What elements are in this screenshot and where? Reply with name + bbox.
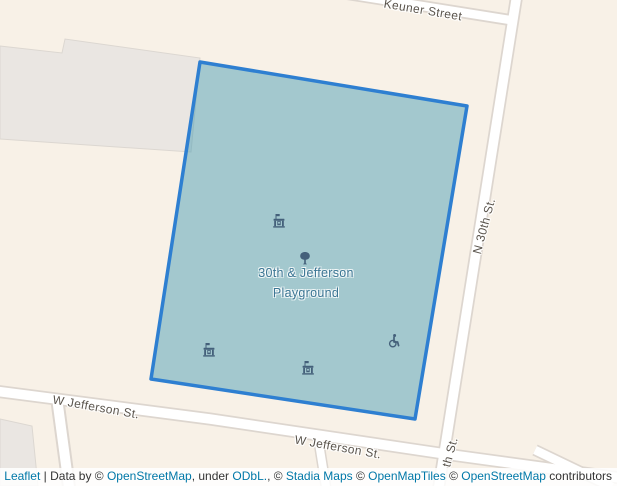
wheelchair-icon — [386, 333, 402, 349]
attribution-text: | Data by © — [40, 469, 107, 483]
leaflet-link[interactable]: Leaflet — [4, 469, 40, 483]
attribution-text: © — [446, 469, 462, 483]
attribution-text: contributors — [546, 469, 612, 483]
playground-icon — [271, 213, 287, 229]
attribution-text: , under — [192, 469, 233, 483]
attribution-bar: Leaflet | Data by © OpenStreetMap, under… — [0, 468, 617, 486]
playground-icon — [300, 360, 316, 376]
stadia-maps-link[interactable]: Stadia Maps — [286, 469, 353, 483]
openstreetmap-link[interactable]: OpenStreetMap — [461, 469, 546, 483]
map-canvas[interactable]: Keuner Street N 30th St. th St. W Jeffer… — [0, 0, 617, 486]
odbl-link[interactable]: ODbL. — [232, 469, 267, 483]
openmaptiles-link[interactable]: OpenMapTiles — [368, 469, 446, 483]
openstreetmap-link[interactable]: OpenStreetMap — [107, 469, 192, 483]
tree-icon — [297, 250, 313, 266]
attribution-text: © — [353, 469, 369, 483]
attribution-text: , © — [267, 469, 286, 483]
building-footprint-top-left — [0, 39, 200, 152]
playground-icon — [201, 342, 217, 358]
basemap-layer — [0, 0, 617, 486]
